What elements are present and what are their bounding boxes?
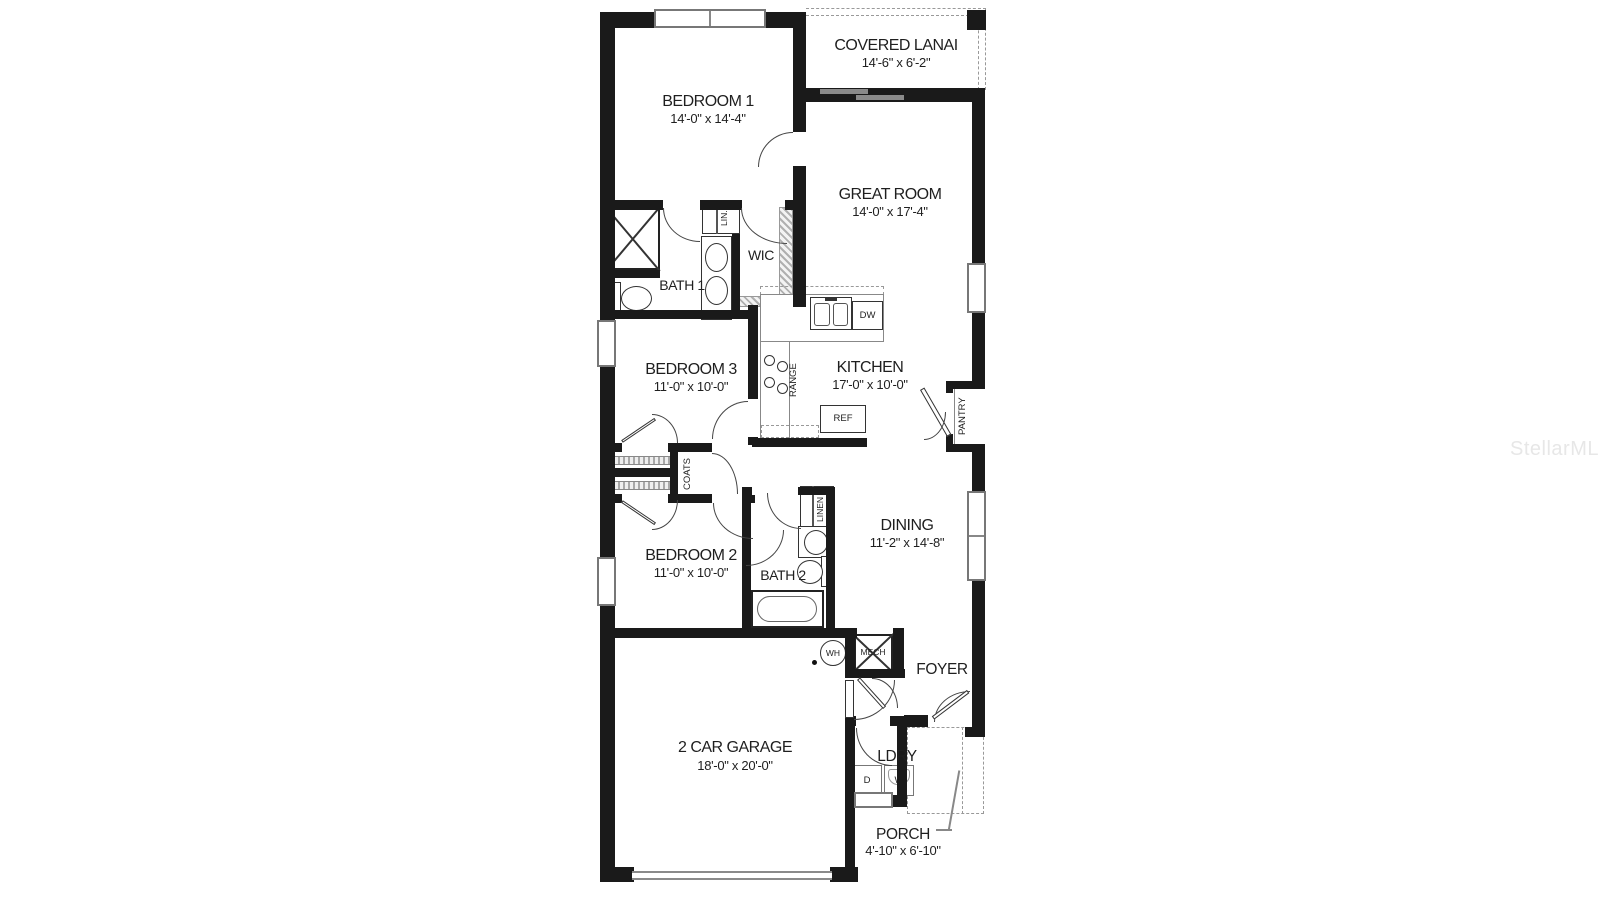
bedroom2-closet-shelf xyxy=(612,481,671,490)
wall-exterior-right-1 xyxy=(972,88,985,266)
door-arc-pantry xyxy=(924,412,946,440)
kitchen-dims: 17'-0" x 10'-0" xyxy=(790,377,950,392)
mech-label: MECH xyxy=(849,647,897,657)
porch-dashed-inner-line xyxy=(962,727,963,814)
dishwasher-label: DW xyxy=(852,301,883,330)
wic-label: WIC xyxy=(727,247,795,263)
door-arc-wic xyxy=(741,208,787,244)
door-arc-coats xyxy=(712,453,738,494)
porch-dims: 4'-10" x 6'-10" xyxy=(853,843,953,858)
door-arc-bath1 xyxy=(663,208,700,242)
wall-kitchen-bottom xyxy=(752,438,867,447)
wall-garage-bottom-left xyxy=(600,867,634,882)
bedroom3-dims: 11'-0" x 10'-0" xyxy=(611,379,771,394)
door-arc-bedroom3-closet xyxy=(652,414,678,443)
wall-garage-right xyxy=(845,628,855,875)
covered-lanai-label: COVERED LANAI xyxy=(816,37,976,55)
sink-basin-right xyxy=(833,303,848,326)
covered-lanai-dims: 14'-6" x 6'-2" xyxy=(816,55,976,70)
window-bedroom1-divider xyxy=(709,11,711,26)
bedroom3-closet-shelf xyxy=(612,456,671,465)
kitchen-label: KITCHEN xyxy=(790,359,950,377)
wall-exterior-right-2 xyxy=(972,312,985,382)
wall-bedroom1-greatroom-lower xyxy=(793,166,806,307)
wall-mech-bottom xyxy=(848,669,905,678)
sink-bath1-top xyxy=(705,243,728,272)
door-arc-bedroom2-closet xyxy=(652,500,678,530)
wall-bath1-top-b xyxy=(700,200,742,210)
wall-exterior-right-4 xyxy=(972,580,985,717)
sink-bath2 xyxy=(804,530,828,555)
wall-closet-mid xyxy=(610,468,678,477)
great-room-dims: 14'-0" x 17'-4" xyxy=(810,204,970,219)
door-arc-bedroom3 xyxy=(712,401,748,439)
opening-bedroom3-closet xyxy=(622,443,668,452)
dining-label: DINING xyxy=(827,517,987,535)
kitchen-counter-dashed-bottom xyxy=(761,425,819,438)
wall-coats-left xyxy=(670,443,678,503)
foyer-label: FOYER xyxy=(906,661,978,679)
range-burner-4 xyxy=(777,383,788,394)
pantry-shelf-line xyxy=(954,389,955,444)
door-leaf-bedroom2-closet xyxy=(621,500,656,525)
dining-dims: 11'-2" x 14'-8" xyxy=(827,535,987,550)
floor-drain-dot xyxy=(812,660,817,665)
sink-faucet xyxy=(825,298,837,301)
bedroom1-dims: 14'-0" x 14'-4" xyxy=(628,111,788,126)
garage-dims: 18'-0" x 20'-0" xyxy=(655,758,815,773)
range-burner-2 xyxy=(777,361,788,372)
bath1-label: BATH 1 xyxy=(648,277,716,293)
tub-basin-bath2 xyxy=(757,596,817,622)
wall-bath1-top-a xyxy=(600,200,663,210)
pantry-label: PANTRY xyxy=(957,390,981,443)
door-leaf-garage-entry xyxy=(845,680,854,718)
sliding-door-panel-right xyxy=(856,95,904,100)
garage-label: 2 CAR GARAGE xyxy=(655,739,815,757)
bedroom1-label: BEDROOM 1 xyxy=(628,93,788,111)
window-bedroom3 xyxy=(597,320,616,367)
window-greatroom xyxy=(967,263,986,313)
wall-garage-bottom-right xyxy=(830,867,858,882)
porch-label: PORCH xyxy=(863,826,943,844)
wall-lanai-corner xyxy=(967,10,986,30)
window-ldry xyxy=(854,792,893,808)
wall-garage-top xyxy=(600,628,857,638)
door-leaf-bedroom3-closet xyxy=(621,418,656,443)
door-arc-bedroom1 xyxy=(758,132,793,167)
water-heater-label: WH xyxy=(820,640,846,666)
bedroom3-label: BEDROOM 3 xyxy=(611,361,771,379)
refrigerator-label: REF xyxy=(820,405,866,433)
ldry-label: LDRY xyxy=(867,748,927,766)
wall-bath1-bottom xyxy=(600,310,758,319)
bath2-label: BATH 2 xyxy=(757,567,809,583)
bedroom2-label: BEDROOM 2 xyxy=(611,547,771,565)
great-room-label: GREAT ROOM xyxy=(810,186,970,204)
porch-dashed-outline xyxy=(907,727,984,814)
coats-label: COATS xyxy=(682,452,709,495)
bedroom2-dims: 11'-0" x 10'-0" xyxy=(611,565,771,580)
wall-bath2-dining xyxy=(826,487,835,630)
stellar-mls-watermark: StellarMLS xyxy=(1510,438,1600,461)
wall-bath1-wic-divider xyxy=(732,234,740,312)
door-arc-linen xyxy=(767,493,801,529)
wall-bedroom1-greatroom-upper xyxy=(793,12,806,132)
wall-exterior-right-3 xyxy=(972,452,985,494)
sink-basin-left xyxy=(814,303,830,326)
sliding-door-panel-left xyxy=(820,89,868,94)
garage-door-panel xyxy=(632,871,832,880)
floorplan-canvas: DW RANGE REF LIN. LINEN WH MECH D W xyxy=(0,0,1600,899)
